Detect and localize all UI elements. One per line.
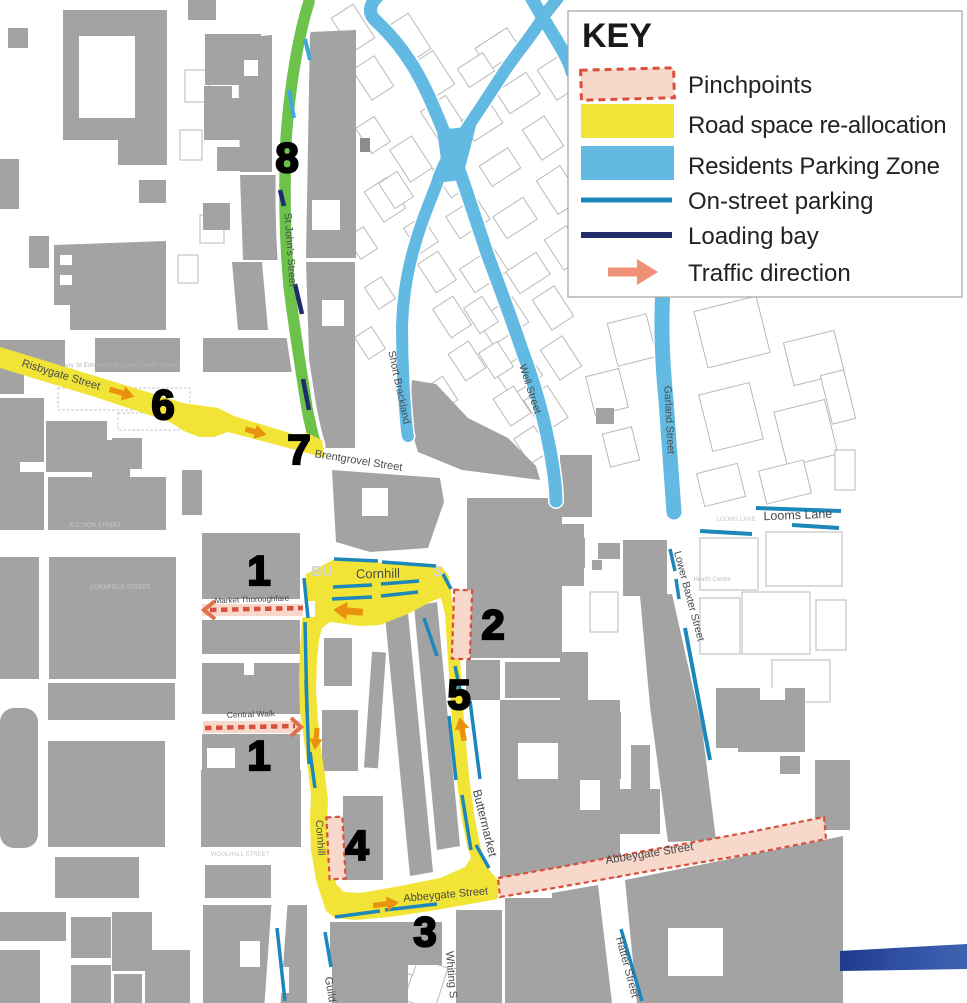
svg-text:KEY: KEY — [582, 17, 652, 55]
svg-text:On-street parking: On-street parking — [688, 188, 873, 215]
svg-text:6: 6 — [151, 381, 174, 428]
svg-text:BU: BU — [311, 563, 333, 580]
svg-text:LOOMS LANE: LOOMS LANE — [716, 517, 755, 523]
svg-text:2: 2 — [481, 601, 504, 648]
svg-text:Cornhill: Cornhill — [313, 820, 327, 856]
svg-text:CORNFIELD STREET: CORNFIELD STREET — [90, 585, 150, 591]
svg-text:5: 5 — [447, 671, 470, 718]
svg-text:3: 3 — [413, 908, 436, 955]
svg-text:Pinchpoints: Pinchpoints — [688, 72, 812, 99]
svg-text:Residents Parking Zone: Residents Parking Zone — [688, 153, 940, 180]
svg-text:AUCTION STREET: AUCTION STREET — [69, 523, 122, 529]
svg-text:Looms Lane: Looms Lane — [763, 507, 832, 523]
svg-text:Traffic direction: Traffic direction — [688, 260, 851, 287]
svg-text:7: 7 — [287, 426, 310, 473]
svg-text:4: 4 — [345, 822, 369, 869]
svg-text:Bury St Edmunds Bus and Coach: Bury St Edmunds Bus and Coach Station — [61, 362, 180, 369]
svg-text:Health Centre: Health Centre — [693, 577, 731, 583]
svg-text:Central Walk: Central Walk — [227, 708, 276, 720]
svg-text:1: 1 — [247, 547, 270, 594]
svg-text:Cornhill: Cornhill — [356, 566, 400, 582]
svg-text:1: 1 — [247, 732, 270, 779]
svg-text:Road space re-allocation: Road space re-allocation — [688, 112, 946, 139]
svg-text:8: 8 — [275, 134, 298, 181]
svg-text:WOOLHALL STREET: WOOLHALL STREET — [211, 852, 270, 858]
svg-text:Loading bay: Loading bay — [688, 223, 819, 250]
